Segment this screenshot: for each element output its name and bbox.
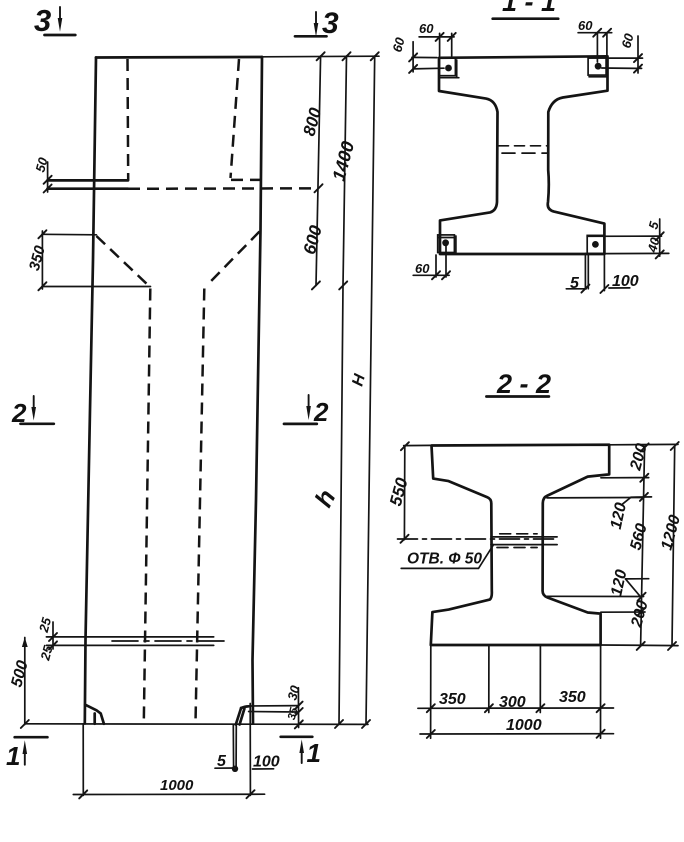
svg-text:1: 1: [6, 741, 20, 771]
svg-text:1000: 1000: [506, 717, 542, 734]
svg-text:100: 100: [253, 754, 280, 771]
svg-text:60: 60: [415, 261, 430, 276]
svg-text:3: 3: [34, 3, 51, 38]
svg-text:ОТВ. Ф 50: ОТВ. Ф 50: [407, 551, 482, 568]
svg-text:350: 350: [439, 691, 466, 708]
svg-text:60: 60: [419, 21, 434, 36]
svg-text:350: 350: [559, 689, 586, 706]
svg-text:60: 60: [578, 18, 593, 33]
svg-text:1 - 1: 1 - 1: [502, 0, 556, 17]
svg-text:1000: 1000: [160, 777, 194, 794]
svg-text:2 - 2: 2 - 2: [496, 369, 551, 399]
svg-text:300: 300: [499, 694, 526, 711]
svg-text:1: 1: [307, 738, 321, 768]
svg-text:2: 2: [313, 397, 329, 427]
